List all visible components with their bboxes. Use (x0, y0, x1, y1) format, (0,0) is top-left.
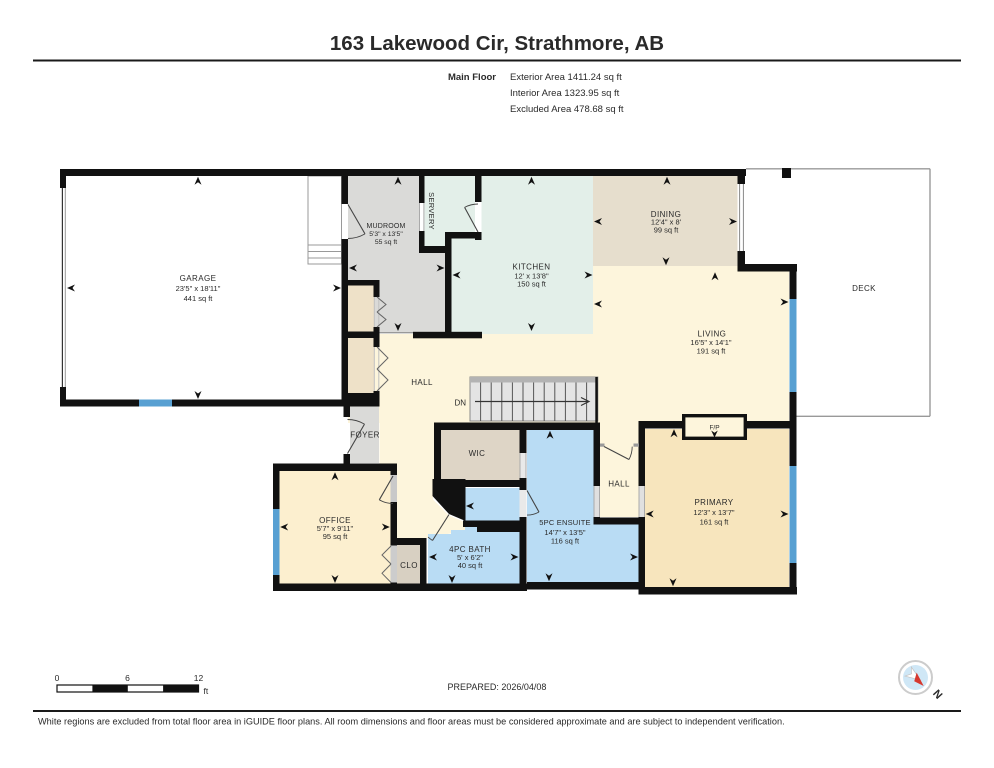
svg-text:441 sq ft: 441 sq ft (184, 294, 214, 303)
svg-text:116 sq ft: 116 sq ft (551, 537, 580, 546)
svg-text:40 sq ft: 40 sq ft (458, 561, 484, 570)
svg-text:HALL: HALL (608, 480, 630, 489)
svg-text:SERVERY: SERVERY (427, 192, 436, 230)
svg-text:MUDROOM: MUDROOM (366, 223, 405, 230)
svg-text:CLO: CLO (400, 561, 418, 570)
svg-text:HALL: HALL (411, 378, 433, 387)
svg-text:PREPARED: 2026/04/08: PREPARED: 2026/04/08 (448, 682, 547, 692)
svg-text:5'3" x 13'5": 5'3" x 13'5" (369, 231, 403, 238)
svg-text:23'5" x 18'11": 23'5" x 18'11" (176, 284, 221, 293)
svg-text:WIC: WIC (469, 449, 486, 458)
svg-text:55 sq ft: 55 sq ft (375, 239, 397, 246)
svg-text:Interior Area 1323.95 sq ft: Interior Area 1323.95 sq ft (510, 88, 620, 99)
svg-text:12: 12 (194, 673, 204, 683)
svg-text:DECK: DECK (852, 284, 876, 293)
svg-text:ft: ft (204, 686, 209, 696)
svg-text:150 sq ft: 150 sq ft (517, 280, 547, 289)
svg-text:12'3" x 13'7": 12'3" x 13'7" (693, 508, 734, 517)
svg-text:163 Lakewood Cir, Strathmore,: 163 Lakewood Cir, Strathmore, AB (330, 32, 664, 55)
svg-text:191 sq ft: 191 sq ft (697, 347, 727, 356)
svg-text:FOYER: FOYER (350, 431, 380, 440)
svg-text:99 sq ft: 99 sq ft (654, 226, 680, 235)
svg-text:95 sq ft: 95 sq ft (323, 532, 349, 541)
svg-text:White regions are excluded fro: White regions are excluded from total fl… (38, 717, 785, 727)
svg-text:F/P: F/P (709, 425, 719, 432)
svg-text:KITCHEN: KITCHEN (513, 263, 551, 272)
svg-text:Excluded Area 478.68 sq ft: Excluded Area 478.68 sq ft (510, 104, 624, 115)
svg-text:5PC ENSUITE: 5PC ENSUITE (539, 518, 590, 527)
svg-text:Exterior Area 1411.24 sq ft: Exterior Area 1411.24 sq ft (510, 72, 622, 83)
svg-text:GARAGE: GARAGE (180, 274, 217, 283)
svg-text:PRIMARY: PRIMARY (694, 498, 733, 507)
svg-text:161 sq ft: 161 sq ft (700, 518, 730, 527)
svg-text:Main Floor: Main Floor (448, 72, 496, 83)
svg-text:6: 6 (125, 673, 130, 683)
svg-text:DN: DN (454, 399, 466, 408)
svg-text:0: 0 (55, 673, 60, 683)
